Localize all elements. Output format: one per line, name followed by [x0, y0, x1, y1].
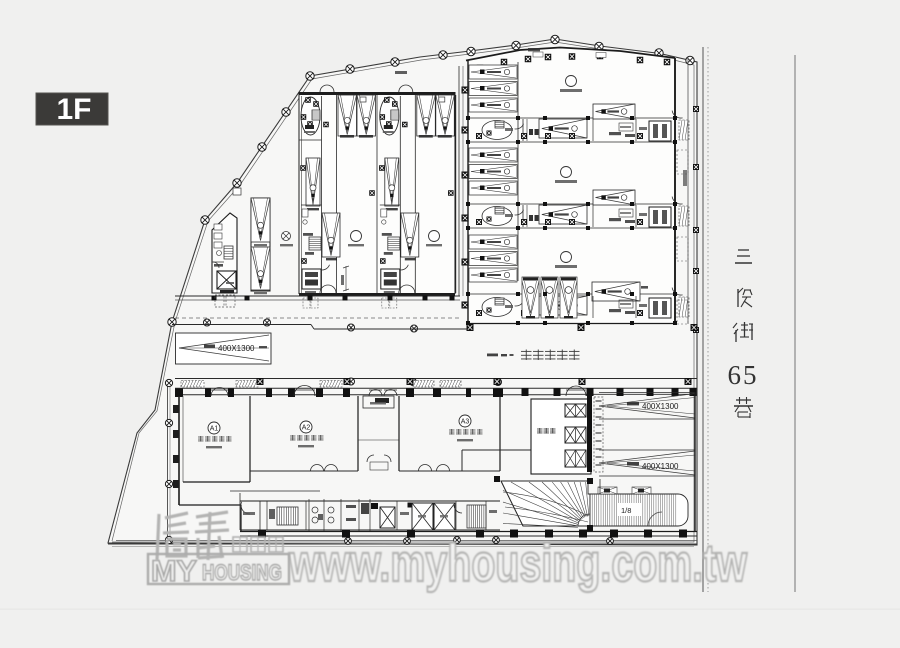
svg-text:1F: 1F: [56, 93, 91, 126]
svg-text:A3: A3: [461, 419, 470, 426]
svg-text:A1: A1: [210, 426, 219, 433]
svg-text:MY: MY: [151, 555, 197, 588]
svg-text:400X1300: 400X1300: [642, 462, 679, 471]
svg-text:A2: A2: [302, 425, 311, 432]
svg-text:1/8: 1/8: [621, 506, 631, 515]
svg-text:400X1300: 400X1300: [642, 402, 679, 411]
svg-text:www.myhousing.com.tw: www.myhousing.com.tw: [288, 534, 747, 593]
svg-text:HOUSING: HOUSING: [202, 560, 282, 585]
svg-text:65: 65: [728, 360, 759, 390]
svg-text:400X1300: 400X1300: [218, 344, 255, 353]
